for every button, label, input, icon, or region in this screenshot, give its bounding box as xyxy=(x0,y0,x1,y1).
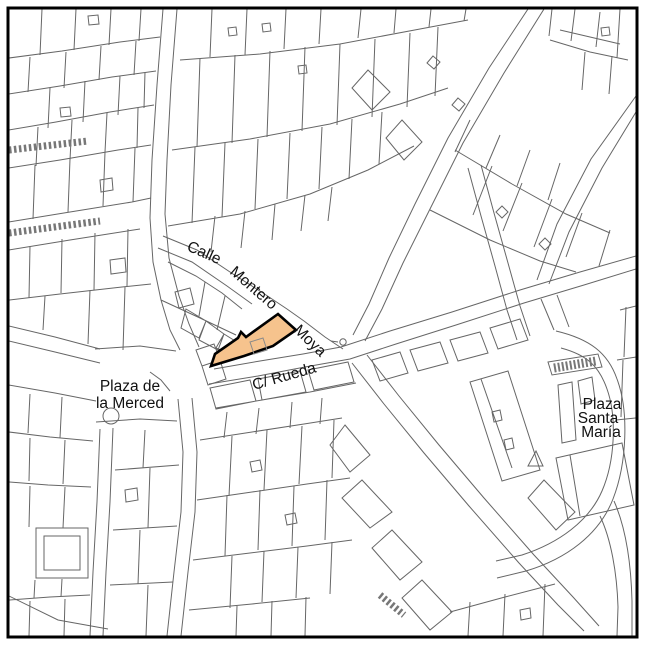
map-canvas: Calle Montero Moya C/ Rueda Plaza de la … xyxy=(0,0,645,645)
plaza-merced-label-line2: la Merced xyxy=(96,395,164,412)
map-background xyxy=(0,0,645,645)
cadastral-map: Calle Montero Moya C/ Rueda Plaza de la … xyxy=(0,0,645,645)
plaza-santa-maria-label-line3: María xyxy=(581,424,621,441)
plaza-merced-label-line1: Plaza de xyxy=(100,378,160,395)
